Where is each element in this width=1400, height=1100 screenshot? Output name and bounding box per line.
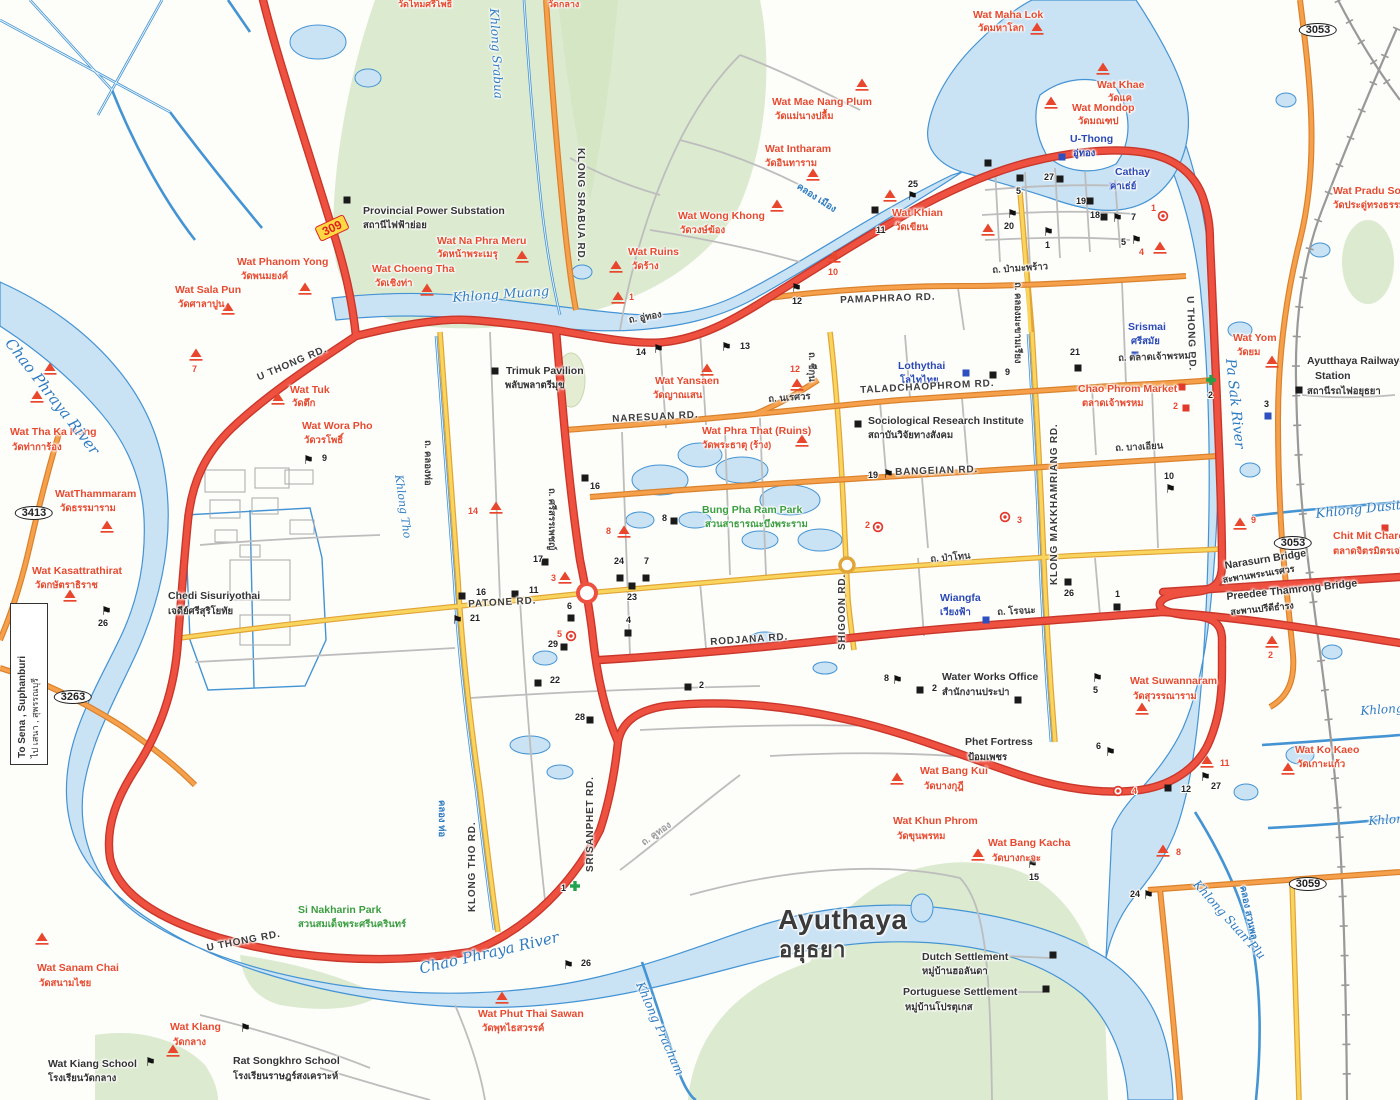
- label-thai: วัดหน้าพระเมรุ: [437, 250, 498, 260]
- label-thai: วัดเชิงท่า: [375, 279, 412, 289]
- label-pa-sak-river: Pa Sak River: [1222, 358, 1246, 449]
- label-thai: วัดมหาโลก: [978, 24, 1024, 34]
- label-preedee-thamrong-bridge: Preedee Thamrong Bridge: [1226, 578, 1358, 603]
- label-u-thong-rd: U THONG RD.: [206, 930, 282, 955]
- label-thai: อู่ทอง: [1073, 149, 1095, 159]
- label-thai: ถ. ป่ามะพร้าว: [992, 262, 1048, 276]
- label-shigoon-rd: SHIGOON RD.: [838, 574, 849, 650]
- label-wat-yansaen: Wat Yansaen: [655, 376, 719, 387]
- label-provincial-power-substation: Provincial Power Substation: [363, 206, 505, 217]
- label-chao-phraya-river: Chao Phraya River: [2, 336, 102, 458]
- label-thai: โรงเรียนวัดกลาง: [48, 1074, 116, 1084]
- label-u-thong-rd: U THONG RD.: [256, 345, 329, 384]
- label-thai: ถ. ป่าโทน: [930, 551, 971, 564]
- label-wat-na-phra-meru: Wat Na Phra Meru: [437, 236, 526, 247]
- label-thai: โรงเรียนราษฎร์สงเคราะห์: [233, 1072, 338, 1082]
- label-wat-phut-thai-sawan: Wat Phut Thai Sawan: [478, 1009, 584, 1020]
- label-khlong-tho: Khlong Tho: [393, 474, 413, 539]
- label-thai: ตลาดจิตรมิตรเจริญ: [1333, 547, 1400, 557]
- label-bangeian-rd: BANGEIAN RD.: [895, 465, 978, 478]
- label-thai: เจดีย์ศรีสุริโยทัย: [168, 607, 233, 617]
- map-label-layer: Wat Maha LokวัดมหาโลกWat KhaeวัดแคWat Mo…: [0, 0, 1400, 1100]
- label-wat-ruins: Wat Ruins: [628, 247, 679, 258]
- label-thai: ถ. ชีกุน: [806, 352, 816, 382]
- label-thai: ถ. บางเอียน: [1115, 441, 1164, 453]
- label-thai: ป้อมเพชร: [968, 753, 1007, 763]
- label-thai: ถ. อู่ทอง: [628, 310, 663, 326]
- label-sociological-research-institute: Sociological Research Institute: [868, 416, 1024, 427]
- label-klong-srabua-rd: KLONG SRABUA RD.: [575, 148, 586, 262]
- label-chedi-sisuriyothai: Chedi Sisuriyothai: [168, 591, 260, 602]
- label-cathay: Cathay: [1115, 167, 1150, 178]
- label-thai: ถ. โรจนะ: [997, 606, 1036, 618]
- label-wat-tuk: Wat Tuk: [290, 385, 330, 396]
- label-thai: ถ. ตลาดเจ้าพรหม: [1118, 351, 1191, 363]
- label-thai: คลอง ท่อ: [436, 800, 446, 837]
- label-thai: วัดขุนพรหม: [897, 832, 945, 842]
- label-wat-sanam-chai: Wat Sanam Chai: [37, 963, 119, 974]
- label-wat-bang-kacha: Wat Bang Kacha: [988, 838, 1070, 849]
- label-portuguese-settlement: Portuguese Settlement: [903, 987, 1017, 998]
- label-wat-ko-kaeo: Wat Ko Kaeo: [1295, 745, 1359, 756]
- label-thai: วัดยม: [1237, 348, 1260, 358]
- label-khlong-pracham: Khlong Pracham: [633, 980, 686, 1077]
- label-rodjana-rd: RODJANA RD.: [710, 633, 788, 649]
- label-thai: วัดอินทาราม: [765, 159, 817, 169]
- label-chao-phrom-market: Chao Phrom Market: [1078, 384, 1177, 395]
- label-thai: สถานีรถไฟอยุธยา: [1307, 387, 1381, 397]
- label-srismai: Srismai: [1128, 322, 1166, 333]
- label-wat-sala-pun: Wat Sala Pun: [175, 285, 241, 296]
- label-thai: วัดร้าง: [632, 262, 659, 272]
- label-taladchaophrom-rd: TALADCHAOPHROM RD.: [860, 379, 995, 397]
- label-thai: อยุธยา: [779, 938, 846, 961]
- label-thai: วัดสุวรรณาราม: [1133, 692, 1197, 702]
- label-thai: หมู่บ้านโปรตุเกส: [905, 1003, 973, 1013]
- sena-sign-line2: ไป เสนา , สุพรรณบุรี: [28, 604, 42, 758]
- label-thai: วัดพุทไธสวรรค์: [482, 1024, 544, 1034]
- label-wat-yom: Wat Yom: [1233, 333, 1277, 344]
- label-thai: วัดกษัตราธิราช: [35, 581, 98, 591]
- label-thai: วัดวงษ์ฆ้อง: [680, 226, 725, 236]
- label-naresuan-rd: NARESUAN RD.: [612, 410, 699, 425]
- label-khlong: Khlong: [1360, 702, 1400, 718]
- label-wat-phanom-yong: Wat Phanom Yong: [237, 257, 328, 268]
- label-thai: วัดพนมยงค์: [241, 272, 288, 282]
- label-thai: พลับพลาตรีมุข: [505, 381, 565, 391]
- label-wat-phra-that-ruins: Wat Phra That (Ruins): [702, 426, 811, 437]
- label-wat-kasattrathirat: Wat Kasattrathirat: [32, 566, 122, 577]
- label-wat-wong-khong: Wat Wong Khong: [678, 211, 765, 222]
- label-klong-tho-rd: KLONG THO RD.: [468, 822, 479, 912]
- label-thai: คลอง เมือง: [795, 182, 838, 215]
- label-thai: วัดเกาะแก้ว: [1297, 760, 1345, 770]
- label-thai: สวนสาธารณะบึงพระราม: [705, 520, 808, 530]
- label-ayuthaya: Ayuthaya: [778, 905, 907, 934]
- label-thai: วัดสนามไชย: [39, 979, 91, 989]
- label-lothythai: Lothythai: [898, 361, 945, 372]
- label-thai: ถ. คลองมะขามเรียง: [1012, 282, 1022, 364]
- label-thai: วัดพระธาตุ (ร้าง): [702, 441, 771, 451]
- label-thai: ถ. ศรีสรรเพชญ์: [546, 488, 556, 550]
- label-watthammaram: WatThammaram: [55, 489, 136, 500]
- label-thai: วัดกลาง: [173, 1038, 206, 1048]
- label-thai: วัดท่าการ้อง: [12, 443, 62, 453]
- label-u-thong: U-Thong: [1070, 134, 1113, 145]
- label-khlong-muang: Khlong Muang: [452, 285, 550, 305]
- label-station: Station: [1315, 371, 1351, 382]
- label-bung-pha-ram-park: Bung Pha Ram Park: [702, 505, 802, 516]
- map-canvas: 1611176294247238162228921261221152719181…: [0, 0, 1400, 1100]
- label-rat-songkhro-school: Rat Songkhro School: [233, 1056, 340, 1067]
- label-pamaphrao-rd: PAMAPHRAO RD.: [840, 293, 936, 307]
- to-sena-suphanburi-sign: To Sena , Suphanburi ไป เสนา , สุพรรณบุร…: [10, 603, 48, 765]
- label-thai: วัดตึก: [292, 399, 315, 409]
- label-thai: วัดแม่นางปลื้ม: [775, 112, 833, 122]
- label-wat-khun-phrom: Wat Khun Phrom: [893, 816, 978, 827]
- label-si-nakharin-park: Si Nakharin Park: [298, 905, 381, 916]
- label-wat-maha-lok: Wat Maha Lok: [973, 10, 1043, 21]
- label-patone-rd: PATONE RD.: [468, 596, 536, 610]
- label-thai: ถ. คูทอง: [640, 820, 674, 848]
- label-wat-bang-kui: Wat Bang Kui: [920, 766, 988, 777]
- label-wat-khae: Wat Khae: [1097, 80, 1144, 91]
- label-khlong-dusit: Khlong Dusit: [1315, 499, 1400, 522]
- label-thai: วัดบางกะจะ: [992, 854, 1041, 864]
- label-wat-wora-pho: Wat Wora Pho: [302, 421, 373, 432]
- label-chit-mit-charoen: Chit Mit Charoen: [1333, 531, 1400, 542]
- label-wat-khian: Wat Khian: [892, 208, 943, 219]
- label-thai: วัดกลาง: [548, 0, 579, 9]
- label-water-works-office: Water Works Office: [942, 672, 1038, 683]
- label-khlong-suan-plu: Khlong Suan Plu: [1191, 878, 1268, 962]
- label-thai: วัดประดู่ทรงธรรม: [1333, 201, 1400, 211]
- label-thai: สวนสมเด็จพระศรีนครินทร์: [298, 920, 406, 930]
- label-thai: ตลาดเจ้าพรหม: [1082, 399, 1144, 409]
- label-thai: ศรีสมัย: [1131, 337, 1160, 347]
- label-thai: เวียงฟ้า: [940, 608, 971, 618]
- label-thai: ถ. นเรศวร: [768, 392, 811, 405]
- label-khlong-srabua: Khlong Srabua: [487, 8, 504, 99]
- label-thai: คาเธ่ย์: [1110, 182, 1136, 192]
- label-wat-pradu-songtham: Wat Pradu Songtham: [1333, 186, 1400, 197]
- label-thai: วัดบางกุฎี: [924, 782, 964, 792]
- label-thai: วัดไหมศรีโพธิ์: [398, 0, 452, 9]
- label-ayutthaya-railway: Ayutthaya Railway-: [1307, 356, 1400, 367]
- label-khlong: Khlong: [1368, 812, 1400, 828]
- label-thai: สะพานปรีดีธำรง: [1230, 601, 1294, 617]
- label-srisanphet-rd: SRISANPHET RD.: [586, 776, 597, 872]
- label-chao-phraya-river: Chao Phraya River: [418, 930, 560, 977]
- label-dutch-settlement: Dutch Settlement: [922, 952, 1008, 963]
- label-thai: ถ. คลองท่อ: [422, 440, 432, 486]
- label-thai: วัดธรรมาราม: [60, 504, 116, 514]
- label-wat-mondop: Wat Mondop: [1072, 103, 1135, 114]
- label-wiangfa: Wiangfa: [940, 593, 981, 604]
- label-thai: วัดวรโพธิ์: [304, 436, 343, 446]
- label-thai: วัดศาลาปูน: [178, 300, 225, 310]
- label-wat-choeng-tha: Wat Choeng Tha: [372, 264, 454, 275]
- label-wat-klang: Wat Klang: [170, 1022, 221, 1033]
- label-thai: สำนักงานประปา: [942, 688, 1009, 698]
- label-thai: วัดญาณเสน: [653, 391, 702, 401]
- label-wat-kiang-school: Wat Kiang School: [48, 1059, 137, 1070]
- label-phet-fortress: Phet Fortress: [965, 737, 1033, 748]
- label-thai: วัดเขียน: [895, 223, 928, 233]
- label-thai: สถาบันวิจัยทางสังคม: [868, 431, 953, 441]
- label-thai: หมู่บ้านฮอลันดา: [922, 967, 988, 977]
- label-thai: วัดมณฑป: [1078, 117, 1119, 127]
- sena-sign-line1: To Sena , Suphanburi: [17, 604, 28, 758]
- label-wat-intharam: Wat Intharam: [765, 144, 831, 155]
- label-wat-mae-nang-plum: Wat Mae Nang Plum: [772, 97, 872, 108]
- label-klong-makkhamriang-rd: KLONG MAKKHAMRIANG RD.: [1050, 424, 1061, 585]
- label-thai: สถานีไฟฟ้าย่อย: [363, 221, 427, 231]
- label-trimuk-pavilion: Trimuk Pavilion: [506, 366, 584, 377]
- label-wat-suwannaram: Wat Suwannaram: [1130, 676, 1217, 687]
